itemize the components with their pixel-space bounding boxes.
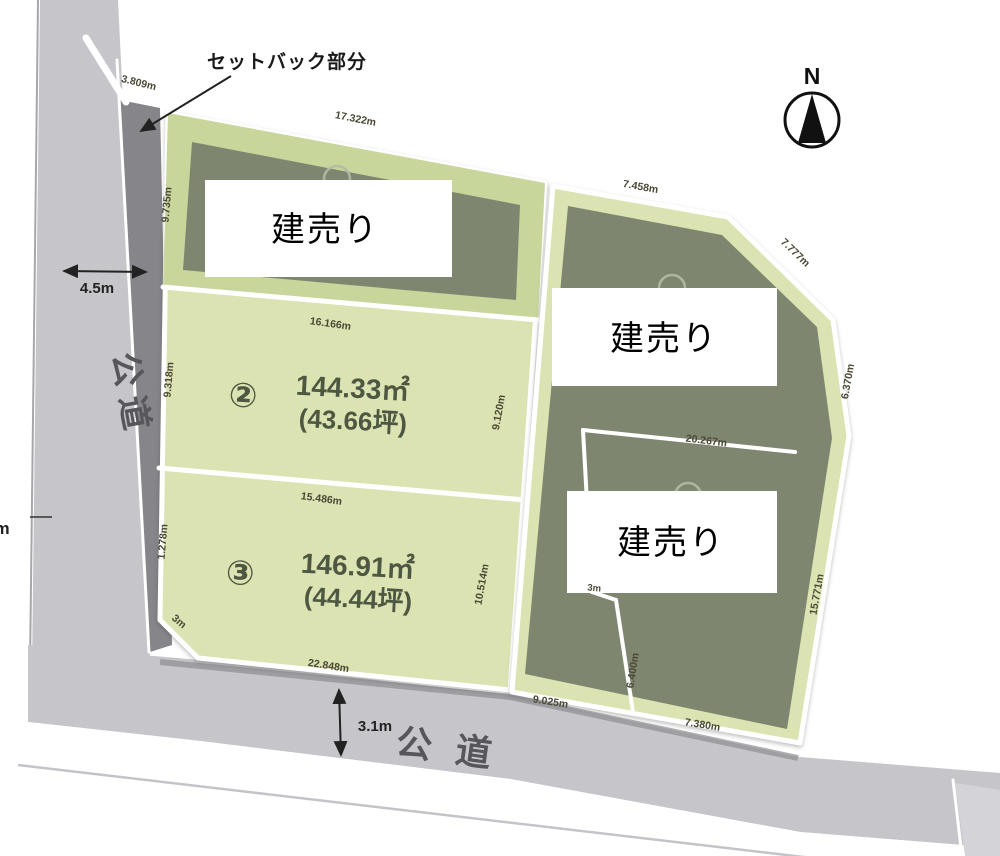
north-compass: N (785, 63, 839, 147)
plot2-area-sqm: 144.33㎡ (295, 369, 410, 407)
plot-map-svg: 建売り 建売り 建売り ② 144.33㎡ (43.66坪) ③ 146.91㎡… (0, 0, 1000, 856)
width-arrow-left-road (64, 271, 146, 272)
dim-plot1-top: 17.322m (334, 109, 377, 129)
dim-right-bottom-step: 3m (587, 582, 602, 594)
north-label: N (804, 63, 821, 89)
setback-note-label: セットバック部分 (207, 50, 367, 73)
land-plot-map: 建売り 建売り 建売り ② 144.33㎡ (43.66坪) ③ 146.91㎡… (0, 0, 1000, 856)
tateuri-label-right-top: 建売り (610, 320, 718, 358)
dim-right-top-diagonal: 7.777m (778, 236, 812, 269)
dim-right-top-top: 7.458m (622, 178, 659, 196)
plot2-area-tsubo: (43.66坪) (298, 403, 408, 439)
plot3-area-sqm: 146.91㎡ (300, 547, 415, 585)
left-road-width-label: 4.5m (80, 280, 114, 297)
plot2-number: ② (228, 376, 259, 415)
tateuri-label-plot1: 建売り (271, 211, 379, 249)
dim-setback-length: 3.809m (120, 73, 157, 93)
compass-needle (798, 94, 826, 143)
left-edge-partial-label: m (0, 519, 10, 538)
plot3-area-tsubo: (44.44坪) (303, 581, 413, 617)
plot3-number: ③ (225, 554, 256, 593)
tateuri-label-right-bottom: 建売り (617, 524, 725, 562)
bottom-road-width-label: 3.1m (358, 718, 392, 735)
